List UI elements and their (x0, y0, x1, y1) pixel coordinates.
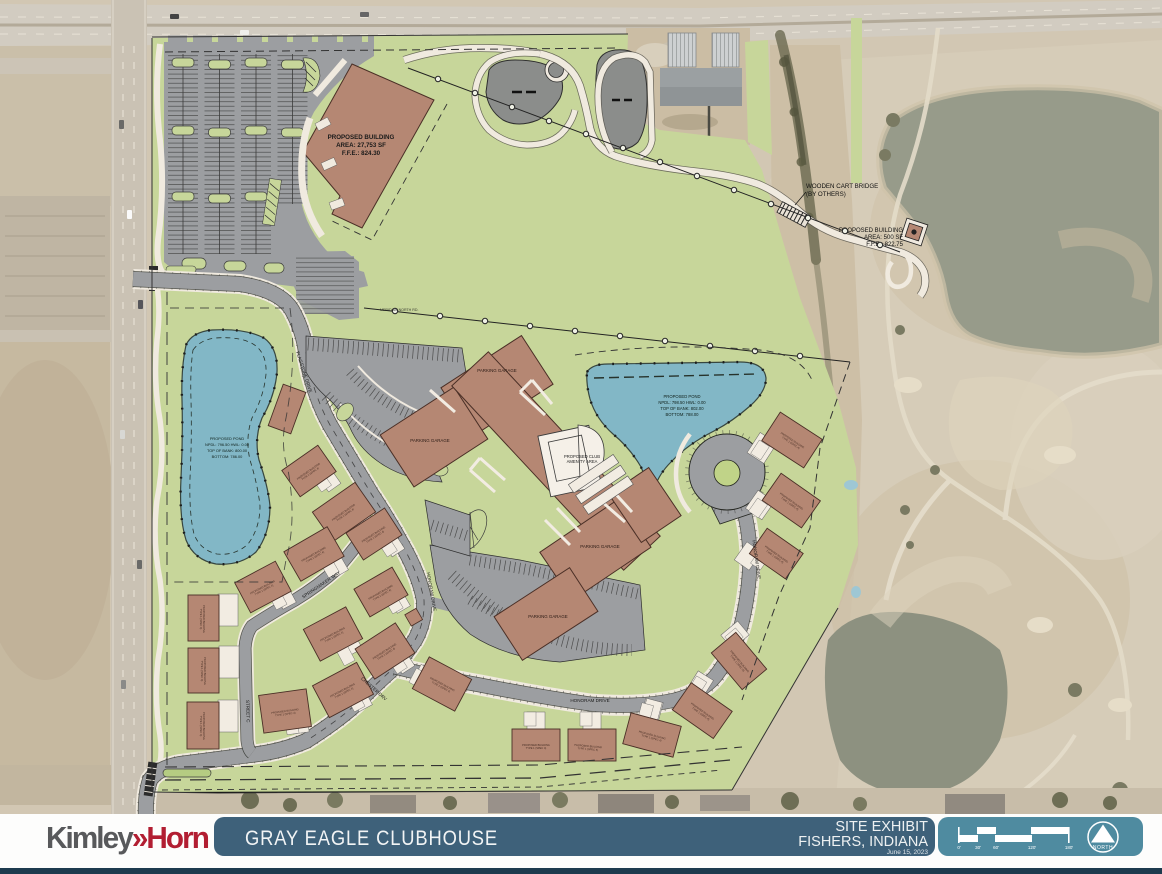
svg-text:PROPOSED BUILDING: PROPOSED BUILDING (328, 134, 395, 141)
svg-text:180': 180' (1065, 845, 1074, 850)
svg-text:TYPE 1 (SPEC 4): TYPE 1 (SPEC 4) (200, 661, 204, 682)
svg-text:PARKING GARAGE: PARKING GARAGE (477, 368, 517, 373)
svg-text:TYPE 1 (SPEC 4): TYPE 1 (SPEC 4) (199, 716, 203, 737)
svg-text:PARKING GARAGE: PARKING GARAGE (410, 438, 450, 443)
svg-text:AREA: 500 SF: AREA: 500 SF (864, 235, 903, 241)
svg-text:(BY OTHERS): (BY OTHERS) (806, 191, 846, 198)
svg-text:STREET C: STREET C (245, 700, 251, 723)
svg-text:TYPE 1 (SPEC 4): TYPE 1 (SPEC 4) (199, 609, 203, 630)
svg-text:FISHERS, INDIANA: FISHERS, INDIANA (798, 834, 928, 850)
svg-text:0': 0' (957, 845, 961, 850)
svg-text:June 15, 2023: June 15, 2023 (887, 849, 929, 856)
svg-text:F.F.E.: 824.30: F.F.E.: 824.30 (342, 150, 381, 157)
svg-text:AREA: 27,753 SF: AREA: 27,753 SF (336, 142, 386, 149)
svg-text:60': 60' (993, 845, 999, 850)
svg-text:TOP OF BANK: 802.00: TOP OF BANK: 802.00 (660, 406, 704, 411)
svg-text:PROPOSED POND: PROPOSED POND (210, 436, 245, 441)
svg-text:Kimley»Horn: Kimley»Horn (46, 820, 209, 855)
svg-text:BOTTOM: 786.00: BOTTOM: 786.00 (212, 454, 243, 459)
svg-text:AMENITY AREA: AMENITY AREA (567, 459, 598, 464)
svg-text:30': 30' (975, 845, 981, 850)
svg-text:PROPOSED POND: PROPOSED POND (664, 394, 701, 399)
svg-text:NPDL: 796.50 HWL: 0.00: NPDL: 796.50 HWL: 0.00 (205, 442, 250, 447)
svg-text:SITE EXHIBIT: SITE EXHIBIT (835, 819, 928, 835)
svg-text:TYPE 1 (SPEC 4): TYPE 1 (SPEC 4) (526, 746, 547, 750)
svg-text:BOTTOM: 788.00: BOTTOM: 788.00 (666, 412, 700, 417)
svg-text:HONORAM DRIVE: HONORAM DRIVE (570, 698, 609, 703)
svg-text:MERIDIAN NORTH RD.: MERIDIAN NORTH RD. (380, 308, 418, 312)
svg-text:WOODEN CART BRIDGE: WOODEN CART BRIDGE (806, 183, 878, 190)
svg-text:F.F.E.: 822.75: F.F.E.: 822.75 (866, 242, 903, 248)
svg-text:TOP OF BANK: 800.00: TOP OF BANK: 800.00 (207, 448, 248, 453)
svg-text:PARKING GARAGE: PARKING GARAGE (580, 544, 620, 549)
svg-text:120': 120' (1028, 845, 1037, 850)
svg-text:NORTH: NORTH (1093, 845, 1113, 851)
svg-text:GRAY EAGLE CLUBHOUSE: GRAY EAGLE CLUBHOUSE (245, 826, 498, 850)
svg-text:NPDL: 798.50 HWL: 0.00: NPDL: 798.50 HWL: 0.00 (658, 400, 706, 405)
svg-text:PARKING GARAGE: PARKING GARAGE (528, 614, 568, 619)
